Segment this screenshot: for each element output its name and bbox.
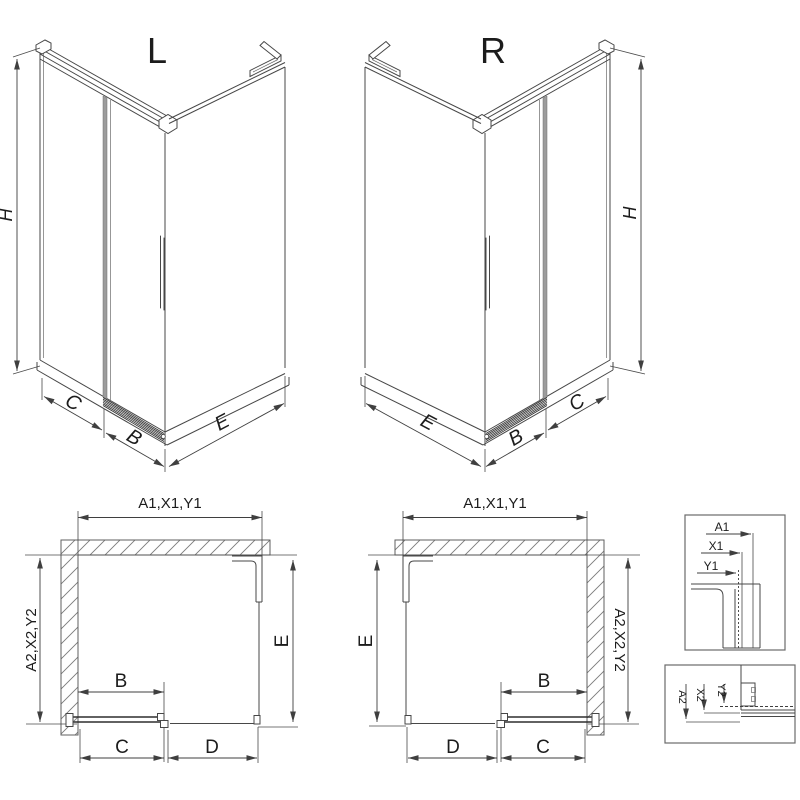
dim-label-x2: X2	[694, 688, 706, 701]
wall-hatched	[395, 540, 604, 735]
dim-label-h: H	[0, 208, 16, 222]
wall-profile-detail-line	[372, 60, 397, 73]
detail-box-wall-profile: A1 X1 Y1	[685, 515, 785, 650]
dim-label-c: C	[61, 390, 85, 417]
door-handle	[486, 236, 490, 310]
dim-label-width: A1,X1,Y1	[138, 495, 201, 512]
rail-wall-end-cap	[36, 40, 51, 54]
dim-label-width: A1,X1,Y1	[463, 495, 526, 512]
dim-label-depth: A2,X2,Y2	[611, 608, 628, 671]
shower-enclosure-dimension-diagram: L H C B	[0, 0, 800, 800]
dim-label-b: B	[123, 425, 146, 451]
door-seal-stripe	[543, 96, 547, 399]
roller-block-upper	[501, 714, 508, 721]
variant-label-right: R	[480, 30, 506, 71]
dim-label-x1: X1	[709, 539, 724, 553]
corner-wall-profile	[232, 556, 262, 602]
plan-view-left: A1,X1,Y1 A2,X2,Y2 E B C D	[23, 495, 298, 763]
track-roller	[161, 435, 165, 439]
dim-label-h: H	[620, 206, 640, 220]
sliding-door-glass	[73, 717, 160, 722]
door-seal-stripe	[103, 96, 107, 399]
dim-label-e: E	[272, 635, 293, 648]
corner-connector-block	[405, 716, 411, 725]
dim-label-e: E	[356, 635, 377, 648]
top-rail-right-face	[169, 63, 285, 124]
roller-block-lower	[161, 721, 169, 728]
wall-profile-flange	[260, 42, 281, 60]
dim-label-y2: Y2	[715, 683, 727, 696]
detail-box-bottom-rail: A2 X2 Y2	[665, 665, 795, 743]
dim-label-b: B	[505, 425, 528, 451]
dim-label-y1: Y1	[704, 559, 719, 573]
door-handle	[161, 236, 165, 310]
dim-label-a2: A2	[676, 690, 688, 703]
corner-connector-block	[254, 716, 260, 725]
top-rail-left-face	[365, 63, 481, 124]
dim-label-b: B	[115, 671, 128, 692]
dim-label-d: D	[205, 737, 219, 758]
roller-block-upper	[158, 714, 165, 721]
variant-label-left: L	[147, 30, 167, 71]
roller-block-lower	[497, 721, 505, 728]
technical-drawing-page: L H C B	[0, 0, 800, 800]
dim-label-b: B	[538, 671, 551, 692]
profile-inner-edge	[691, 589, 723, 648]
dim-label-c: C	[565, 389, 589, 416]
wall-profile-block	[592, 714, 599, 727]
dim-label-d: D	[446, 737, 460, 758]
floor-rail-lines	[741, 710, 795, 717]
iso-view-left: L H C B	[0, 30, 289, 472]
detail-frame	[665, 665, 795, 743]
iso-view-right: R H E B C	[361, 30, 645, 472]
dim-label-depth: A2,X2,Y2	[23, 608, 40, 671]
dim-label-a1: A1	[715, 520, 730, 534]
corner-wall-profile	[403, 556, 433, 602]
right-glass-bottom-edge	[485, 360, 610, 432]
wall-profile-detail-line	[253, 60, 278, 73]
dim-label-c: C	[115, 737, 129, 758]
bottom-profile-section	[741, 683, 755, 706]
left-glass-bottom-edge	[40, 360, 165, 432]
sliding-door-glass	[505, 717, 592, 722]
plan-view-right: A1,X1,Y1 A2,X2,Y2 E B D C	[356, 495, 640, 763]
dim-label-c: C	[536, 737, 550, 758]
track-roller	[485, 435, 489, 439]
wall-profile-block	[66, 714, 73, 727]
rail-wall-end-cap	[599, 40, 614, 54]
wall-profile-flange	[369, 42, 390, 60]
wall-hatched	[61, 540, 270, 735]
